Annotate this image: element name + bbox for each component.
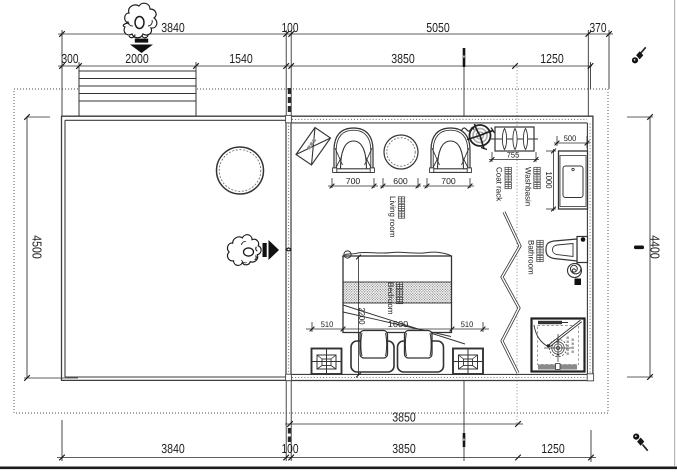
svg-text:100: 100 — [282, 441, 299, 456]
svg-text:Bedroom: Bedroom — [386, 282, 395, 315]
svg-text:3850: 3850 — [392, 410, 416, 425]
svg-text:500: 500 — [564, 134, 577, 143]
svg-text:5050: 5050 — [426, 20, 450, 35]
svg-text:600: 600 — [393, 176, 408, 186]
svg-text:4400: 4400 — [648, 235, 663, 259]
svg-text:3850: 3850 — [392, 441, 416, 456]
svg-text:700: 700 — [441, 176, 456, 186]
svg-text:Bathroom: Bathroom — [527, 240, 536, 275]
svg-text:1000: 1000 — [544, 172, 554, 189]
svg-text:510: 510 — [321, 320, 334, 329]
svg-text:1250: 1250 — [540, 51, 564, 66]
svg-text:1540: 1540 — [229, 51, 253, 66]
svg-text:Living room: Living room — [388, 196, 397, 238]
svg-text:Coat rack: Coat rack — [495, 167, 504, 202]
svg-text:3840: 3840 — [161, 441, 185, 456]
svg-text:100: 100 — [282, 20, 299, 35]
svg-text:3850: 3850 — [391, 51, 415, 66]
svg-text:1600: 1600 — [388, 319, 409, 329]
svg-text:Washbasin: Washbasin — [524, 167, 533, 206]
svg-text:300: 300 — [62, 51, 79, 66]
svg-text:2200: 2200 — [357, 308, 367, 325]
svg-text:2000: 2000 — [125, 51, 149, 66]
svg-text:755: 755 — [507, 151, 520, 160]
svg-text:3840: 3840 — [161, 20, 185, 35]
svg-text:510: 510 — [461, 320, 474, 329]
svg-text:4500: 4500 — [30, 235, 45, 259]
svg-text:370: 370 — [590, 20, 607, 35]
svg-text:1250: 1250 — [541, 441, 565, 456]
svg-text:700: 700 — [346, 176, 361, 186]
